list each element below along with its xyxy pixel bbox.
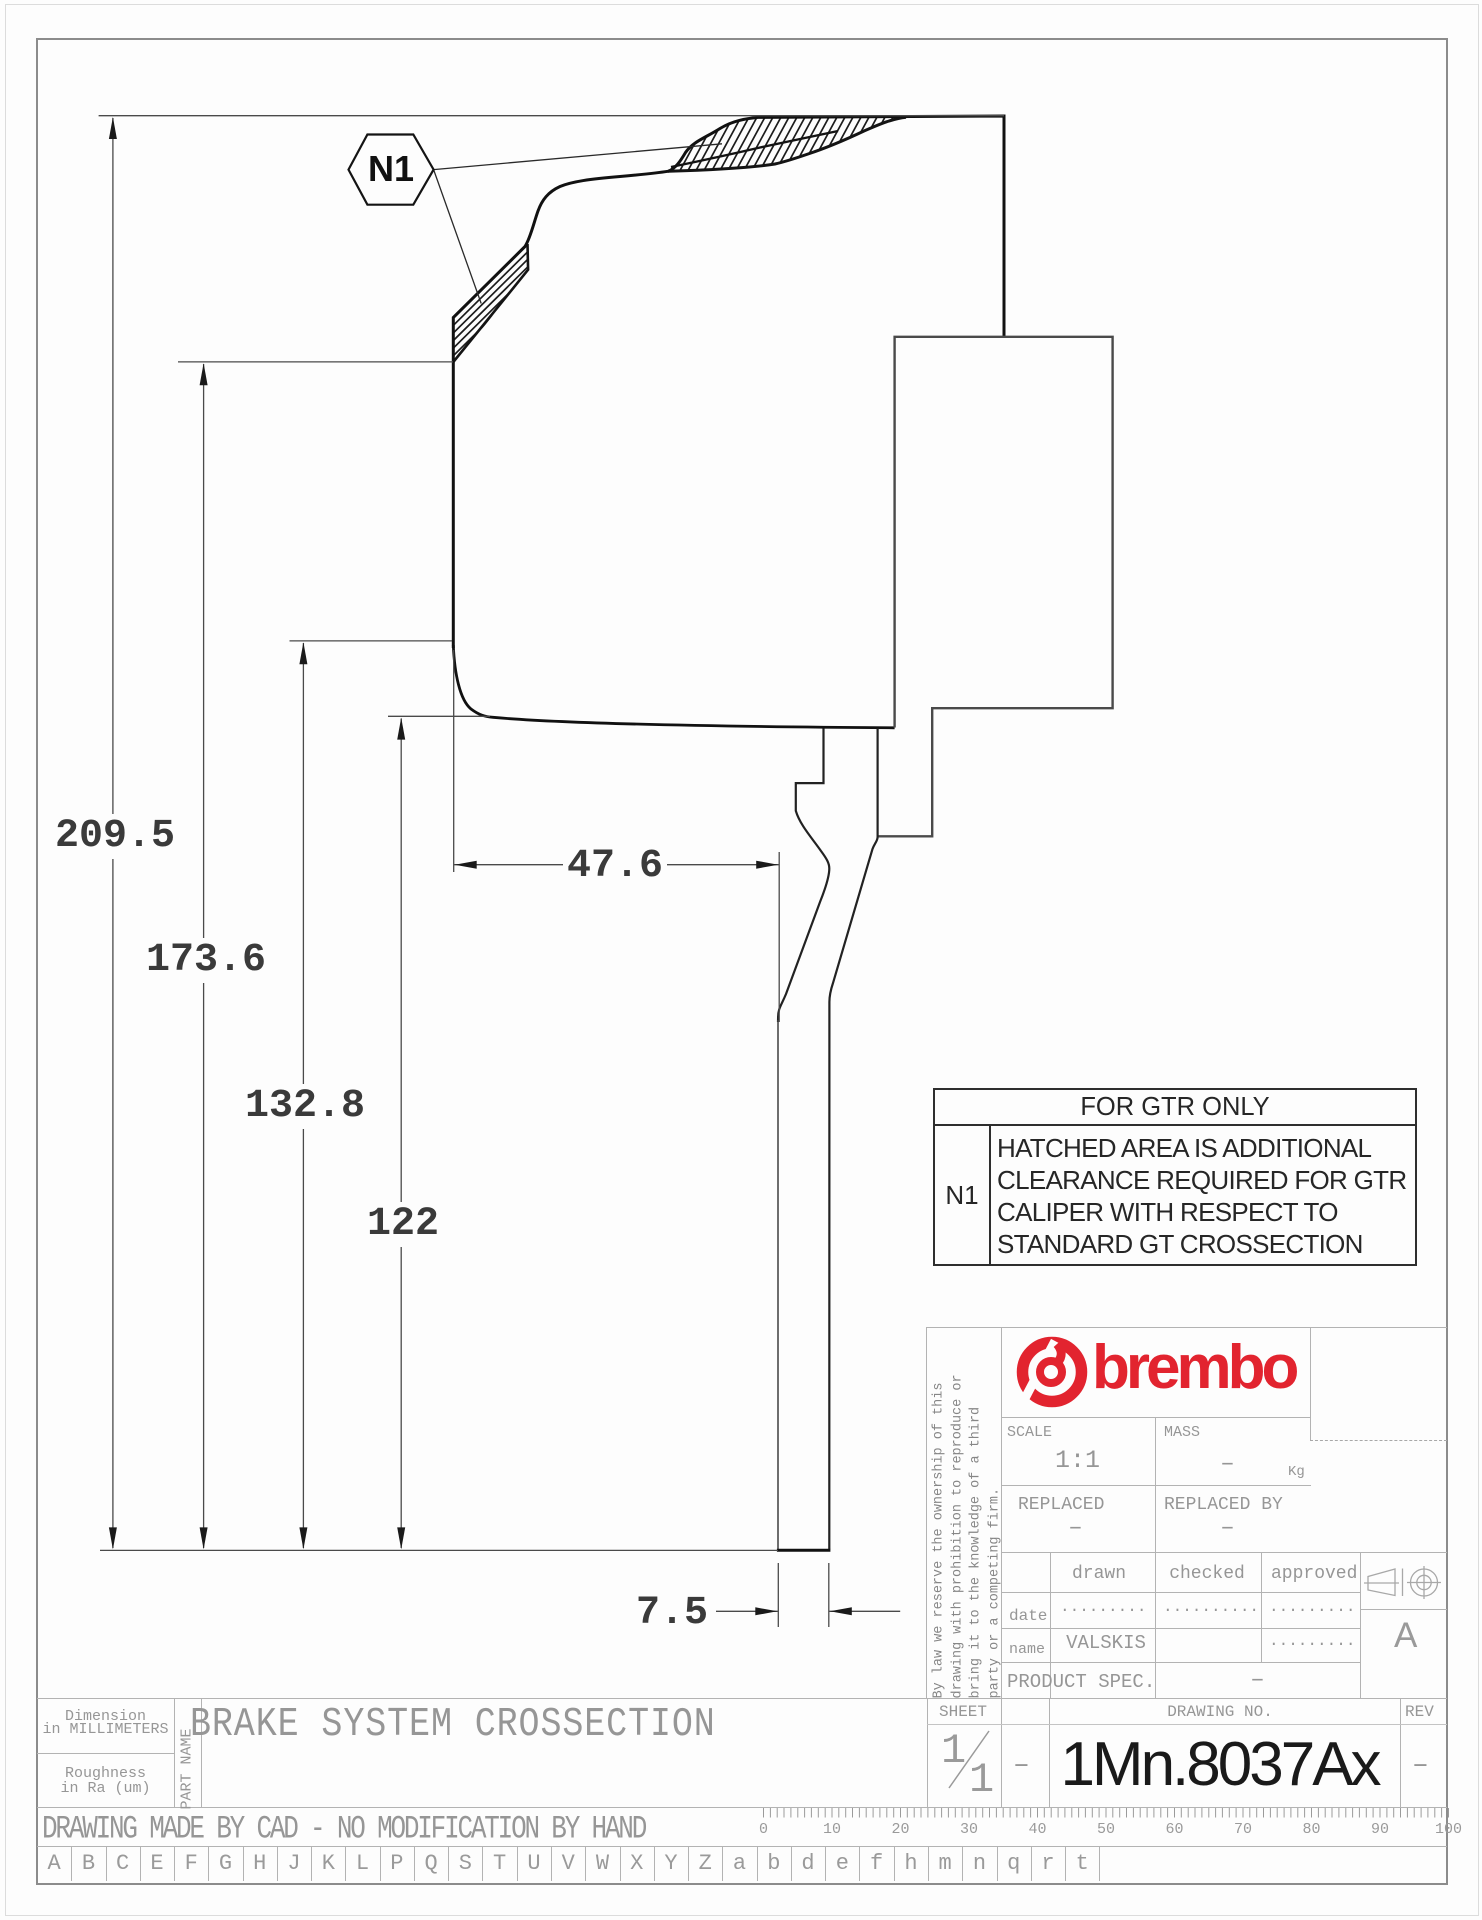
svg-text:60: 60: [1165, 1821, 1183, 1838]
svg-text:10: 10: [823, 1821, 841, 1838]
svg-text:0: 0: [759, 1821, 768, 1838]
svg-text:70: 70: [1234, 1821, 1252, 1838]
svg-text:50: 50: [1097, 1821, 1115, 1838]
svg-text:30: 30: [960, 1821, 978, 1838]
svg-text:20: 20: [891, 1821, 909, 1838]
svg-text:100: 100: [1435, 1821, 1462, 1838]
svg-text:80: 80: [1302, 1821, 1320, 1838]
svg-text:40: 40: [1028, 1821, 1046, 1838]
svg-text:90: 90: [1371, 1821, 1389, 1838]
svg-text:1: 1: [941, 1727, 966, 1775]
svg-text:1: 1: [969, 1756, 994, 1804]
